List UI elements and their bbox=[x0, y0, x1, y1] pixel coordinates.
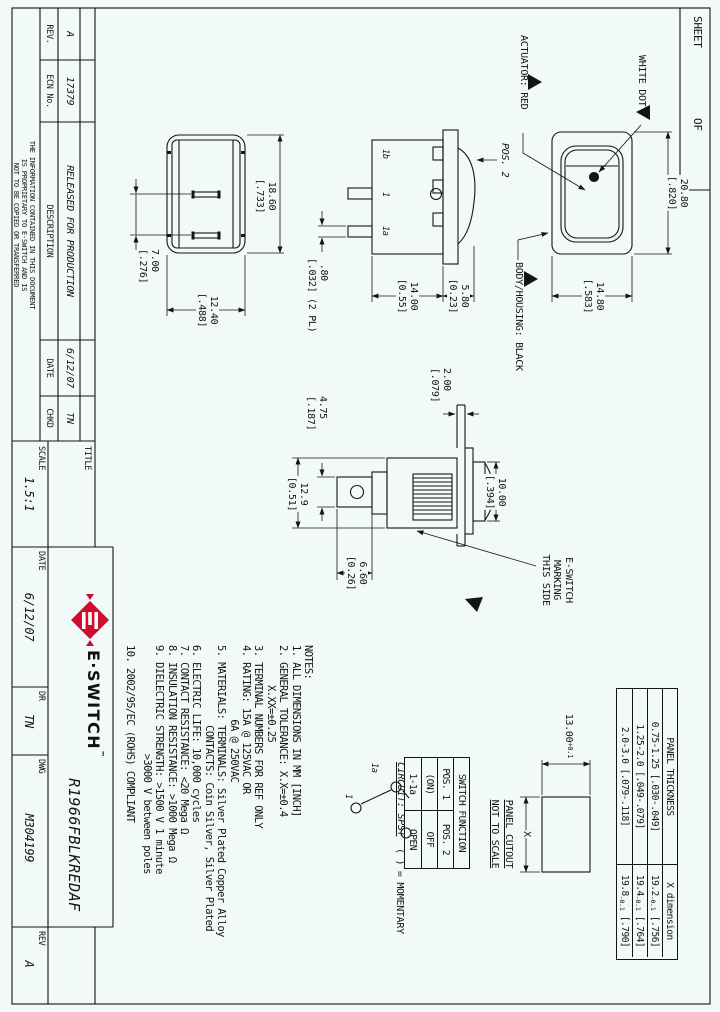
cutout-height-value: 13.00 bbox=[563, 714, 574, 743]
dwg-value: M304199 bbox=[23, 814, 35, 862]
dim-panel-thickness: 2.00 [.079] bbox=[429, 368, 452, 402]
dr-label: DR bbox=[35, 691, 47, 701]
page-border bbox=[12, 8, 710, 1004]
note-line: CONTACTS: Coin Silver, Silver Plated bbox=[203, 645, 215, 931]
proprietary-line3: NOT TO BE COPIED OR TRANSFERRED bbox=[10, 163, 22, 287]
terminal-1b-label: 1b bbox=[379, 149, 391, 159]
scale-value: 1.5:1 bbox=[23, 477, 35, 512]
function-table-title: SWITCH FUNCTION bbox=[453, 758, 469, 868]
actuator-flag-icon bbox=[528, 74, 542, 90]
dim-front-width: 20.80 [.820] bbox=[666, 175, 689, 211]
function-table-cell: OFF bbox=[421, 811, 437, 868]
rev-entry-ecn: 17379 bbox=[64, 77, 76, 106]
dim-rocker-height: 5.80 [0.23] bbox=[447, 278, 470, 314]
note-line: >3000 V between poles bbox=[141, 645, 153, 874]
side-view bbox=[348, 130, 475, 264]
end-view bbox=[337, 405, 494, 546]
dim-blade-width: 4.75 [.187] bbox=[305, 396, 328, 430]
circuit-terminal-1a: 1a bbox=[368, 763, 380, 773]
rev-header-date: DATE bbox=[43, 358, 55, 377]
dim-body-width: 12.9 [0.51] bbox=[286, 476, 309, 512]
white-dot-flag-icon bbox=[636, 105, 650, 120]
cutout-height-dim: 13.00+0.1 bbox=[562, 702, 575, 758]
cutout-x-label: X bbox=[521, 830, 533, 838]
pos2-label: POS. 2 bbox=[499, 143, 511, 177]
white-dot-label: WHITE DOT bbox=[636, 55, 648, 107]
terminal-1a-label: 1a bbox=[379, 226, 391, 236]
rev-value: A bbox=[23, 961, 35, 968]
switch-function-table: SWITCH FUNCTION POS. 1 POS. 2 (ON) OFF 1… bbox=[404, 757, 470, 869]
note-line: 9. DIELECTRIC STRENGTH: >1500 V 1 minute bbox=[153, 645, 165, 874]
dwg-label: DWG bbox=[35, 759, 47, 773]
note-line: 1. ALL DIMENSIONS IN MM [INCH] bbox=[290, 645, 302, 817]
date-value: 6/12/07 bbox=[23, 593, 35, 641]
note-line: 7. CONTACT RESISTANCE: <20 Mega Ω bbox=[178, 645, 190, 834]
eswitch-logo-text: E·SWITCH™ bbox=[84, 650, 103, 759]
rev-header-rev: REV. bbox=[43, 24, 55, 43]
dim-terminal-thickness: .80 [.032] (2 PL) bbox=[306, 258, 329, 332]
panel-cutout bbox=[520, 760, 590, 872]
sheet-label: SHEET bbox=[692, 16, 704, 48]
note-line: 8. INSULATION RESISTANCE: >1000 Mega Ω bbox=[166, 645, 178, 862]
body-housing-flag-icon bbox=[524, 271, 538, 287]
drawing-sheet-rotated: SHEET OF WHITE DOT 20.80 [.820] 14.80 [.… bbox=[0, 0, 720, 1012]
panel-table-header-2: X dimension bbox=[662, 865, 677, 957]
dim-bezel-width: 10.00 [.394] bbox=[484, 474, 507, 510]
dim-blade-length: 6.60 [0.26] bbox=[345, 555, 368, 591]
drawing-geometry bbox=[0, 0, 720, 1012]
cutout-title: PANEL CUTOUT bbox=[503, 800, 515, 869]
rev-label: REV bbox=[35, 931, 47, 945]
panel-table-cell: 19.8-0.1 [.790] bbox=[617, 865, 632, 957]
bottom-view-dimensions bbox=[130, 135, 284, 316]
function-table-col1: POS. 1 bbox=[437, 758, 453, 811]
title-label: TITLE bbox=[81, 446, 93, 470]
function-table-cell: 1-1a bbox=[405, 758, 421, 811]
terminal-1-label: 1 bbox=[379, 192, 391, 197]
note-line: 6A @ 250VAC bbox=[228, 645, 240, 782]
rev-entry-chkd: TN bbox=[64, 412, 76, 423]
panel-table-header-1: PANEL THICKNESS bbox=[662, 689, 677, 865]
function-table-cell: OPEN bbox=[405, 811, 421, 868]
rev-entry-date: 6/12/07 bbox=[64, 348, 76, 388]
rev-header-description: DESCRIPTION bbox=[43, 205, 55, 258]
scale-label: SCALE bbox=[35, 446, 47, 470]
dim-base-height: 12.40 [.488] bbox=[196, 292, 219, 328]
eswitch-logo-icon bbox=[66, 592, 112, 648]
rev-header-chkd: CHKD bbox=[43, 408, 55, 427]
drawing-page: SHEET OF WHITE DOT 20.80 [.820] 14.80 [.… bbox=[0, 0, 720, 1012]
note-line: X.XX=±0.25 bbox=[265, 645, 277, 742]
note-line: 6. ELECTRIC LIFE: 10,000 cycles bbox=[190, 645, 202, 822]
of-label: OF bbox=[692, 118, 704, 131]
dr-value: TN bbox=[23, 714, 35, 728]
function-table-cell: (ON) bbox=[421, 758, 437, 811]
function-table-col2: POS. 2 bbox=[437, 811, 453, 868]
note-line: 5. MATERIALS: TERMINALS: Silver Plated C… bbox=[215, 645, 227, 937]
note-line: 3. TERMINAL NUMBERS FOR REF ONLY bbox=[252, 645, 264, 828]
note-line: NOTES: bbox=[302, 645, 314, 679]
panel-thickness-table: PANEL THICKNESS X dimension 0.75-1.25 [.… bbox=[616, 688, 678, 960]
note-line: 4. RATING: 15A @ 125VAC OR bbox=[240, 645, 252, 794]
eswitch-logo: E·SWITCH™ bbox=[66, 592, 112, 822]
panel-table-cell: 19.2-0.1 [.756] bbox=[647, 865, 662, 957]
actuator-label: ACTUATOR: RED bbox=[518, 35, 530, 109]
panel-table-cell: 19.4-0.1 [.764] bbox=[632, 865, 647, 957]
front-view bbox=[552, 132, 632, 254]
note-line: 2. GENERAL TOLERANCE: X.X=±0.4 bbox=[277, 645, 289, 817]
dim-body-height: 14.00 [0.55] bbox=[396, 278, 419, 314]
dim-front-height: 14.80 [.583] bbox=[582, 278, 605, 314]
date-label: DATE bbox=[35, 551, 47, 570]
panel-table-cell: 1.25-2.0 [.049-.079] bbox=[632, 689, 647, 865]
body-housing-label: BODY/HOUSING: BLACK bbox=[513, 262, 525, 371]
dim-terminal-spacing: 7.00 [.276] bbox=[137, 249, 160, 283]
circuit-terminal-1: 1 bbox=[342, 794, 354, 799]
white-dot-mark bbox=[590, 173, 599, 182]
rev-entry-description: RELEASED FOR PRODUCTION bbox=[64, 165, 76, 297]
panel-table-cell: 0.75-1.25 [.030-.049] bbox=[647, 689, 662, 865]
cutout-subtitle: NOT TO SCALE bbox=[489, 800, 501, 869]
marking-flag-icon bbox=[465, 597, 483, 612]
note-line: 10. 2002/95/EC (ROHS) COMPLIANT bbox=[124, 645, 136, 822]
panel-table-cell: 2.0-3.0 [.079-.118] bbox=[617, 689, 632, 865]
marking-label: E-SWITCH MARKING THIS SIDE bbox=[540, 554, 575, 606]
dim-base-width: 18.60 [.733] bbox=[254, 178, 277, 214]
rev-header-ecn: ECN No. bbox=[43, 74, 55, 108]
cutout-height-tol: +0.1 bbox=[566, 742, 574, 758]
rev-entry-rev: A bbox=[64, 31, 76, 37]
